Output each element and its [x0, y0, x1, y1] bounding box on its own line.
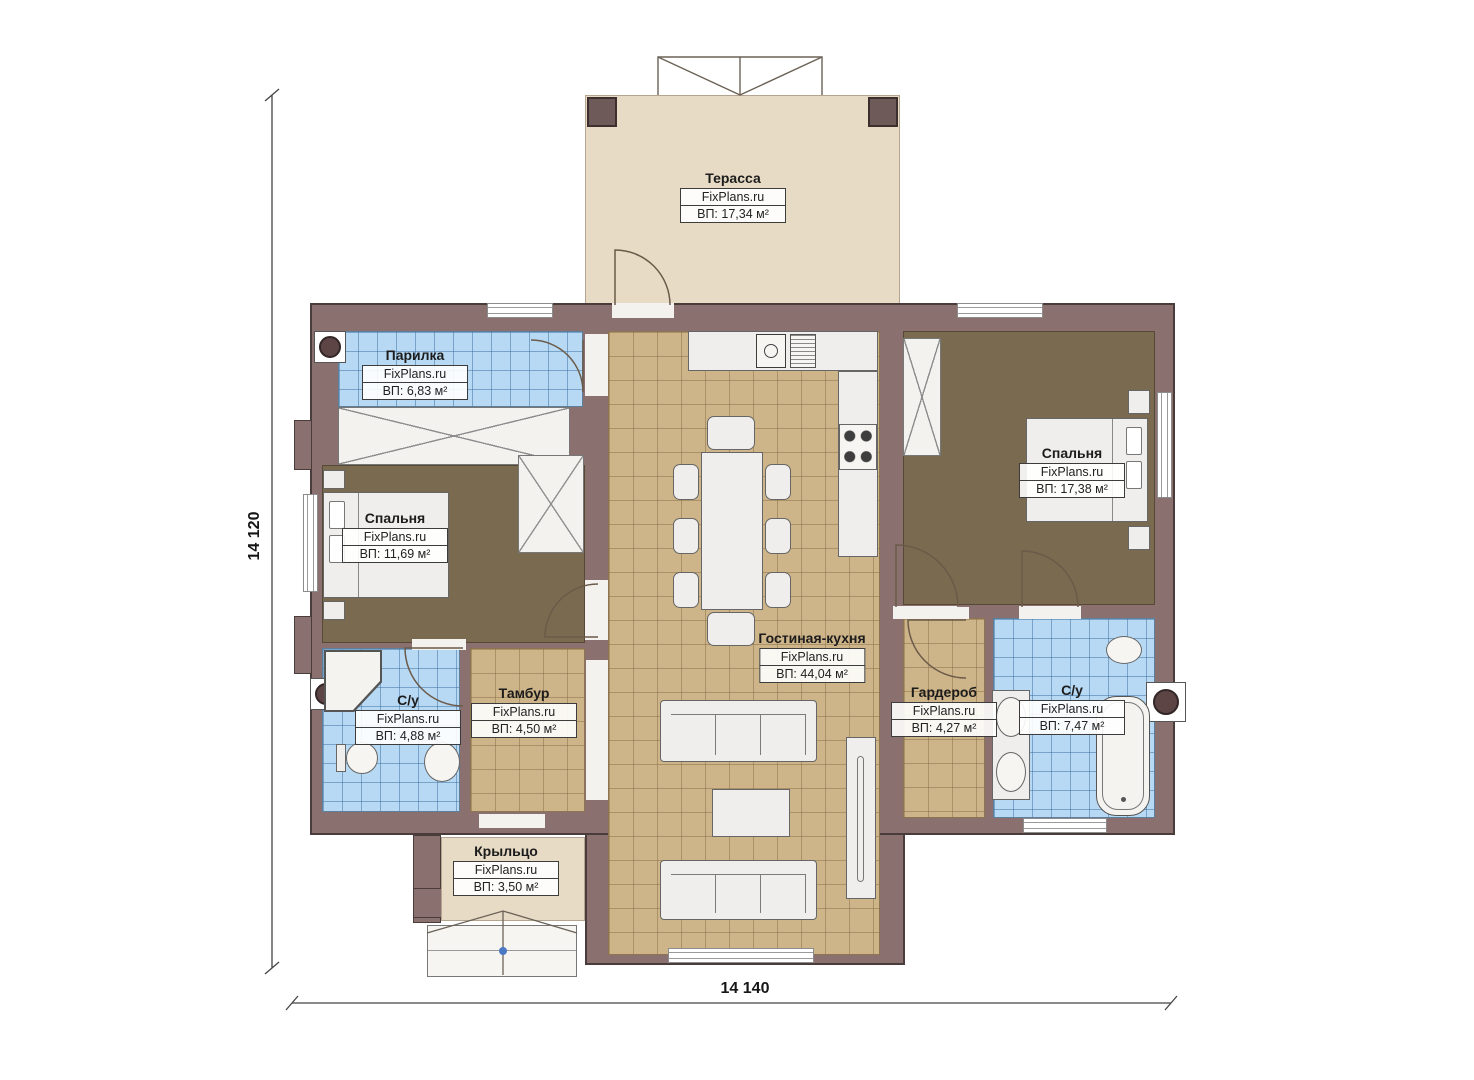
- vent-marker: [1146, 682, 1186, 722]
- wall-pilaster: [294, 420, 312, 470]
- sofa-cushions: [671, 714, 806, 755]
- area-box: ВП: 6,83 м²: [362, 382, 468, 400]
- floor-plan: Терасса FixPlans.ruВП: 17,34 м² Парилка …: [0, 0, 1474, 1080]
- room-label-wardrobe: Гардероб FixPlans.ruВП: 4,27 м²: [891, 684, 997, 737]
- nightstand: [1128, 390, 1150, 414]
- chair: [673, 572, 699, 608]
- door-opening-bathroom-left: [412, 639, 466, 650]
- room-name: Крыльцо: [453, 843, 559, 859]
- porch-steps: [427, 925, 577, 977]
- area-box: ВП: 4,50 м²: [471, 720, 577, 738]
- sofa: [660, 700, 817, 762]
- room-name: Гостиная-кухня: [758, 630, 865, 646]
- vent-icon: [1153, 689, 1180, 716]
- door-opening-bedroom-right-2: [1019, 606, 1081, 619]
- stove: [839, 424, 877, 470]
- brand-box: FixPlans.ru: [471, 703, 577, 721]
- area-box: ВП: 17,34 м²: [680, 205, 786, 223]
- room-label-bathroom-right: С/у FixPlans.ruВП: 7,47 м²: [1019, 682, 1125, 735]
- room-name: Парилка: [362, 347, 468, 363]
- chair: [673, 464, 699, 500]
- brand-box: FixPlans.ru: [342, 528, 448, 546]
- door-opening-porch: [479, 814, 545, 828]
- room-name: Терасса: [680, 170, 786, 186]
- area-box: ВП: 11,69 м²: [342, 545, 448, 563]
- sink-basin-icon: [764, 344, 778, 358]
- tv-cabinet: [846, 737, 876, 899]
- brand-box: FixPlans.ru: [362, 365, 468, 383]
- terrace-roof-outline: [658, 57, 822, 95]
- window: [1157, 392, 1172, 498]
- brand-box: FixPlans.ru: [891, 702, 997, 720]
- brand-box: FixPlans.ru: [1019, 700, 1125, 718]
- chair: [765, 518, 791, 554]
- dim-tick: [265, 962, 279, 974]
- toilet: [346, 742, 378, 774]
- dim-tick: [286, 996, 298, 1010]
- brand-box: FixPlans.ru: [759, 648, 865, 666]
- chair: [707, 612, 755, 646]
- room-label-bedroom-right: Спальня FixPlans.ruВП: 17,38 м²: [1019, 445, 1125, 498]
- nightstand: [323, 470, 345, 489]
- door-opening-vestibule-living: [586, 660, 608, 800]
- sink: [996, 752, 1026, 792]
- area-box: ВП: 3,50 м²: [453, 878, 559, 896]
- kitchen-sink: [756, 334, 786, 368]
- room-name: Спальня: [1019, 445, 1125, 461]
- room-label-bathroom-left: С/у FixPlans.ruВП: 4,88 м²: [355, 692, 461, 745]
- nightstand: [323, 601, 345, 620]
- dim-tick: [265, 89, 279, 101]
- coffee-table: [712, 789, 790, 837]
- dimension-label-horizontal: 14 140: [690, 980, 800, 998]
- brand-box: FixPlans.ru: [453, 861, 559, 879]
- vent-marker: [314, 331, 346, 363]
- room-name: Тамбур: [471, 685, 577, 701]
- dining-table: [701, 452, 763, 610]
- chair: [765, 464, 791, 500]
- area-box: ВП: 4,27 м²: [891, 719, 997, 737]
- brand-box: FixPlans.ru: [355, 710, 461, 728]
- dim-tick: [1165, 996, 1177, 1010]
- door-opening-steam: [585, 334, 608, 396]
- wall-pilaster: [294, 616, 312, 674]
- room-name: С/у: [1019, 682, 1125, 698]
- room-label-living-kitchen: Гостиная-кухня FixPlans.ruВП: 44,04 м²: [758, 630, 865, 683]
- brand-box: FixPlans.ru: [1019, 463, 1125, 481]
- toilet: [1106, 636, 1142, 664]
- closet-bedroom-right: [903, 338, 941, 456]
- closet-bedroom-left: [518, 455, 584, 553]
- area-box: ВП: 7,47 м²: [1019, 717, 1125, 735]
- chair: [673, 518, 699, 554]
- dimension-label-vertical: 14 120: [246, 491, 264, 581]
- terrace-column: [868, 97, 898, 127]
- nightstand: [1128, 526, 1150, 550]
- toilet-tank: [336, 744, 346, 772]
- window: [303, 494, 318, 592]
- room-label-terrace: Терасса FixPlans.ruВП: 17,34 м²: [680, 170, 786, 223]
- room-label-porch: Крыльцо FixPlans.ruВП: 3,50 м²: [453, 843, 559, 896]
- brand-box: FixPlans.ru: [680, 188, 786, 206]
- tv-icon: [857, 756, 864, 882]
- window: [487, 303, 553, 318]
- area-box: ВП: 44,04 м²: [759, 665, 865, 683]
- area-box: ВП: 4,88 м²: [355, 727, 461, 745]
- room-name: Спальня: [342, 510, 448, 526]
- room-label-steam: Парилка FixPlans.ruВП: 6,83 м²: [362, 347, 468, 400]
- sofa-cushions: [671, 874, 806, 913]
- door-opening-wardrobe: [906, 607, 969, 619]
- window: [668, 948, 814, 963]
- window: [957, 303, 1043, 318]
- pillow: [1126, 427, 1142, 455]
- room-name: Гардероб: [891, 684, 997, 700]
- dish-rack: [790, 334, 816, 368]
- drain-icon: [1121, 797, 1126, 802]
- washbasin: [424, 742, 460, 782]
- room-name: С/у: [355, 692, 461, 708]
- room-label-bedroom-left: Спальня FixPlans.ruВП: 11,69 м²: [342, 510, 448, 563]
- area-box: ВП: 17,38 м²: [1019, 480, 1125, 498]
- chair: [707, 416, 755, 450]
- window: [1023, 818, 1107, 833]
- chair: [765, 572, 791, 608]
- terrace-column: [587, 97, 617, 127]
- room-label-vestibule: Тамбур FixPlans.ruВП: 4,50 м²: [471, 685, 577, 738]
- pillow: [1126, 461, 1142, 489]
- door-opening-terrace: [612, 303, 674, 318]
- door-opening-bedroom-left: [585, 580, 608, 640]
- sofa: [660, 860, 817, 920]
- vent-icon: [319, 336, 341, 358]
